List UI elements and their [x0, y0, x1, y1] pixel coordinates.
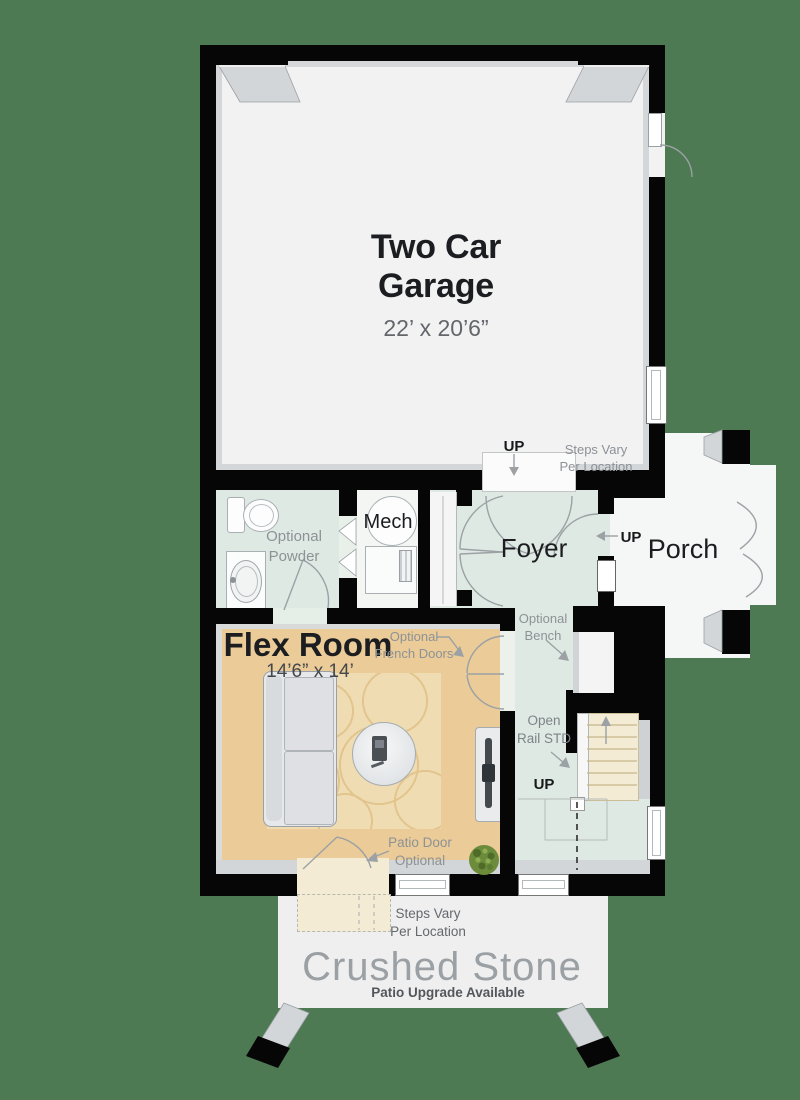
flex-top-wall [210, 608, 500, 624]
rear-window-glass [399, 880, 446, 889]
sofa-seat-cushion [284, 751, 334, 825]
patio-door-label: Patio Door Optional [388, 834, 452, 870]
floor-plan: Two Car Garage 22’ x 20’6” Optional Powd… [0, 0, 800, 1100]
closet-jamb [456, 490, 472, 506]
porch-top-wall [610, 482, 665, 498]
steps-vary-bottom-label: Steps Vary Per Location [390, 905, 466, 941]
mech-closet-wall [418, 490, 430, 610]
sink-basin-inner [235, 566, 258, 597]
media-box [482, 764, 495, 782]
rear-steps-dashed [297, 894, 391, 932]
french-doorway [500, 631, 515, 711]
wall-face [216, 624, 222, 866]
bench-nook [578, 632, 614, 693]
open-rail-label: Open Rail STD [517, 712, 571, 748]
powder-doorway [273, 608, 327, 624]
closet-jamb [456, 590, 472, 606]
sink-faucet [230, 577, 236, 583]
wall-face [216, 61, 222, 470]
french-doors-label: Optional French Doors [375, 628, 454, 662]
porch-entry-floor [750, 465, 776, 605]
mech-room-label: Mech [364, 509, 413, 535]
up-garage-steps-label: UP [504, 437, 525, 457]
optional-bench-label: Optional Bench [519, 610, 567, 644]
foyer-room-label: Foyer [501, 531, 567, 565]
bench-wall [613, 634, 665, 720]
stair-rail-post [570, 797, 585, 811]
garage-window-glass [651, 370, 661, 420]
patio-upgrade-label: Patio Upgrade Available [371, 984, 525, 1002]
patio-pillar [246, 1003, 620, 1068]
garage-dimensions: 22’ x 20’6” [383, 313, 488, 343]
table-tray-detail [375, 740, 384, 748]
closet-interior [430, 492, 457, 606]
hall-window-glass [652, 810, 661, 856]
stair-rail [577, 713, 589, 801]
rear-window-glass [522, 880, 565, 889]
porch-room-label: Porch [648, 532, 719, 568]
flex-room-dimensions: 14’6” x 14’ [266, 659, 354, 684]
foyer-sidelight-window [597, 560, 616, 592]
toilet-bowl-inner [249, 504, 274, 527]
steps-vary-top-label: Steps Vary Per Location [560, 441, 633, 475]
mech-doorway [339, 516, 357, 578]
sofa-back-cushion [266, 675, 282, 821]
garage-side-door-leaf [648, 113, 662, 147]
up-stairs-label: UP [534, 775, 555, 795]
sofa-seat-cushion [284, 677, 334, 751]
up-porch-label: UP [621, 528, 642, 548]
porch-pillar [722, 610, 750, 654]
powder-room-label: Optional Powder [266, 527, 322, 567]
furnace-vent [399, 550, 412, 582]
garage-corner-block [204, 47, 288, 65]
bench-wall [573, 606, 665, 634]
stairs [587, 713, 639, 801]
porch-pillar [722, 430, 750, 464]
garage-room-label: Two Car Garage [371, 228, 501, 307]
bench-nook-face [573, 632, 579, 693]
